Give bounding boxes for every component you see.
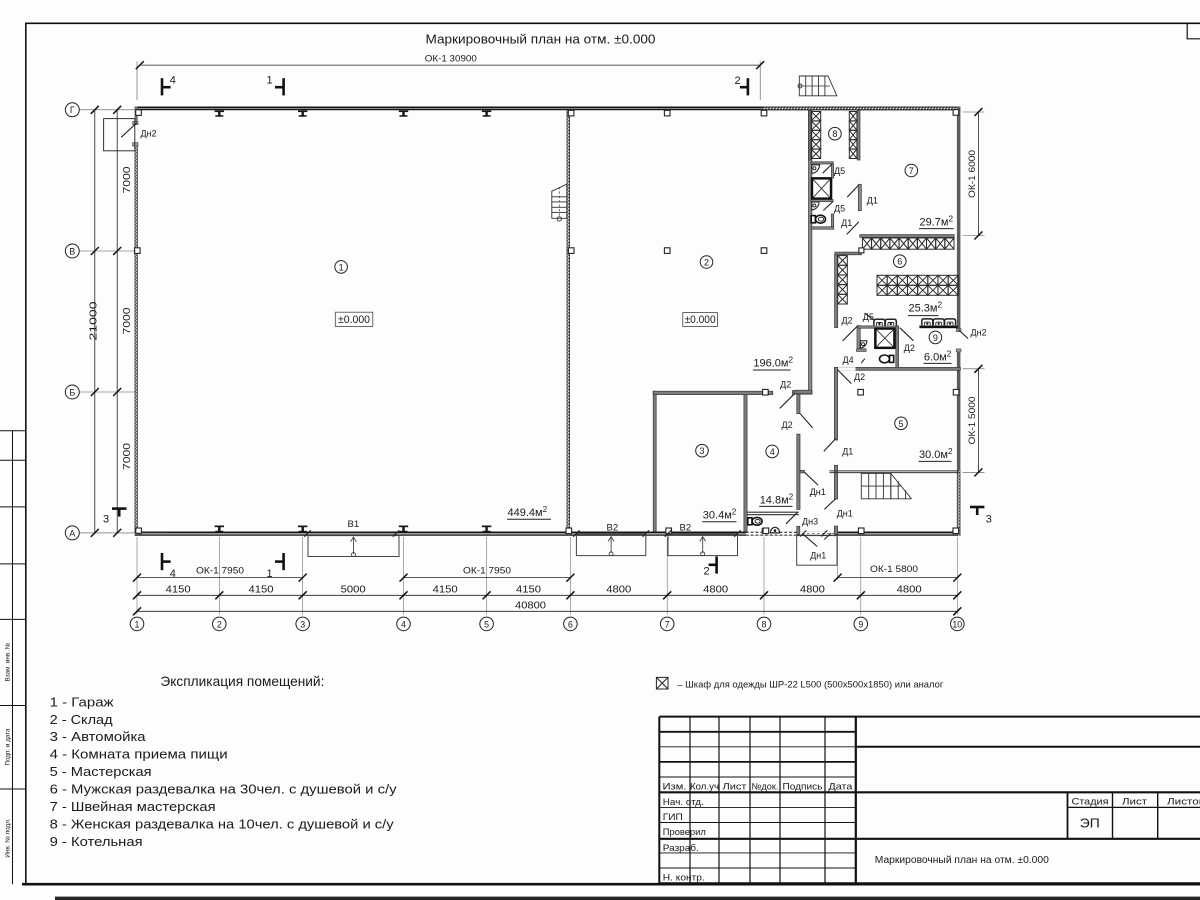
svg-text:14.8м2: 14.8м2 [760, 492, 794, 506]
svg-text:Стадия: Стадия [1072, 796, 1109, 807]
svg-text:1 - Гараж: 1 - Гараж [50, 694, 114, 709]
svg-text:8: 8 [832, 129, 837, 139]
svg-text:7: 7 [909, 166, 914, 176]
svg-text:2: 2 [704, 566, 710, 578]
svg-text:4150: 4150 [516, 584, 541, 595]
svg-text:7 - Швейная мастерская: 7 - Швейная мастерская [50, 799, 216, 814]
svg-text:ОК-1 5800: ОК-1 5800 [870, 564, 918, 574]
svg-text:Б: Б [69, 387, 75, 397]
svg-text:4150: 4150 [433, 584, 458, 595]
svg-text:Дата: Дата [828, 782, 853, 792]
svg-text:ОК-1 7950: ОК-1 7950 [463, 566, 511, 576]
svg-text:ОК-1 7950: ОК-1 7950 [196, 566, 244, 576]
svg-text:1: 1 [339, 262, 344, 272]
svg-text:Д5: Д5 [834, 204, 845, 214]
svg-text:Инв. № подл.: Инв. № подл. [5, 818, 12, 857]
svg-text:5000: 5000 [341, 584, 366, 595]
svg-text:1: 1 [135, 619, 140, 629]
svg-text:Лист: Лист [1122, 796, 1148, 807]
svg-text:4150: 4150 [249, 584, 274, 595]
svg-text:9 - Котельная: 9 - Котельная [50, 834, 143, 849]
svg-text:Дн1: Дн1 [810, 487, 826, 497]
svg-text:Дн1: Дн1 [810, 551, 826, 561]
svg-text:А: А [69, 528, 75, 538]
svg-text:6 - Мужская раздевалка на 30че: 6 - Мужская раздевалка на 30чел. с душев… [50, 782, 397, 797]
svg-text:Нач. отд.: Нач. отд. [663, 796, 704, 807]
svg-text:Д2: Д2 [782, 420, 793, 430]
svg-text:21000: 21000 [89, 301, 100, 341]
svg-text:Разраб.: Разраб. [663, 842, 699, 853]
svg-text:Д5: Д5 [863, 312, 874, 322]
svg-text:ЭП: ЭП [1080, 816, 1100, 831]
svg-text:Д1: Д1 [842, 447, 853, 457]
svg-text:ОК-1 6000: ОК-1 6000 [967, 150, 977, 198]
svg-text:9: 9 [858, 619, 863, 629]
svg-text:3: 3 [103, 514, 109, 526]
svg-text:7000: 7000 [122, 166, 133, 194]
svg-text:Д4: Д4 [843, 355, 854, 365]
svg-text:Подпись: Подпись [783, 782, 823, 792]
svg-text:29.7м2: 29.7м2 [920, 214, 954, 228]
svg-text:4800: 4800 [703, 584, 728, 595]
svg-text:– Шкаф для одежды ШР-22 L500 (: – Шкаф для одежды ШР-22 L500 (500х500х18… [677, 680, 944, 690]
svg-text:9: 9 [933, 333, 938, 343]
svg-text:7000: 7000 [122, 307, 133, 335]
svg-text:7: 7 [665, 619, 670, 629]
svg-text:Д2: Д2 [904, 343, 915, 353]
svg-text:Д1: Д1 [867, 196, 878, 206]
svg-text:4: 4 [170, 568, 176, 580]
svg-text:3: 3 [986, 514, 992, 526]
svg-text:ОК-1 30900: ОК-1 30900 [425, 54, 477, 64]
svg-text:В: В [69, 246, 75, 256]
svg-text:4 - Комната приема пищи: 4 - Комната приема пищи [50, 747, 228, 762]
svg-text:4: 4 [170, 75, 176, 87]
svg-text:Дн3: Дн3 [802, 517, 818, 527]
svg-text:Д2: Д2 [780, 380, 791, 390]
svg-text:4150: 4150 [166, 584, 191, 595]
svg-text:5: 5 [484, 619, 489, 629]
svg-text:В2: В2 [680, 523, 692, 534]
svg-text:В1: В1 [348, 519, 360, 530]
svg-text:Экспликация помещений:: Экспликация помещений: [160, 674, 324, 689]
svg-text:6: 6 [568, 619, 573, 629]
svg-text:Взам. инв. №: Взам. инв. № [5, 642, 12, 681]
svg-text:7000: 7000 [122, 442, 133, 470]
svg-text:Д2: Д2 [842, 316, 853, 326]
svg-text:Д5: Д5 [834, 166, 845, 176]
svg-text:4800: 4800 [800, 584, 825, 595]
svg-text:5: 5 [898, 419, 903, 429]
svg-text:Изм.: Изм. [663, 782, 687, 792]
svg-text:4: 4 [770, 447, 775, 457]
svg-text:2 - Склад: 2 - Склад [50, 712, 113, 727]
svg-text:Дн2: Дн2 [971, 328, 987, 338]
svg-text:3: 3 [699, 446, 704, 456]
svg-text:Д1: Д1 [841, 218, 852, 228]
svg-text:№док.: №док. [752, 782, 779, 792]
svg-text:Листов: Листов [1167, 796, 1200, 807]
svg-text:4800: 4800 [606, 584, 631, 595]
svg-text:±0.000: ±0.000 [685, 314, 716, 326]
svg-text:5 - Мастерская: 5 - Мастерская [50, 764, 152, 779]
svg-text:2: 2 [217, 619, 222, 629]
svg-text:Маркировочный план на отм. ±0.: Маркировочный план на отм. ±0.000 [426, 32, 656, 47]
svg-text:Г: Г [70, 105, 75, 115]
svg-text:8: 8 [762, 619, 767, 629]
svg-text:1: 1 [267, 568, 273, 580]
svg-text:4: 4 [401, 619, 406, 629]
svg-text:25.3м2: 25.3м2 [909, 301, 943, 315]
svg-text:Д2: Д2 [854, 372, 865, 382]
svg-text:1: 1 [267, 75, 273, 87]
svg-text:ГИП: ГИП [663, 811, 683, 822]
svg-text:196.0м2: 196.0м2 [753, 355, 793, 369]
svg-text:2: 2 [735, 75, 741, 87]
svg-text:30.0м2: 30.0м2 [919, 447, 953, 461]
svg-text:449.4м2: 449.4м2 [508, 505, 548, 519]
svg-text:Подп. и дата: Подп. и дата [5, 728, 12, 766]
svg-text:3: 3 [300, 619, 305, 629]
svg-text:Лист: Лист [723, 782, 748, 792]
svg-text:ОК-1 5000: ОК-1 5000 [967, 397, 977, 445]
svg-text:Дн2: Дн2 [141, 129, 157, 139]
svg-text:3 - Автомойка: 3 - Автомойка [50, 729, 147, 744]
svg-text:±0.000: ±0.000 [338, 314, 370, 326]
svg-text:10: 10 [952, 619, 962, 629]
svg-text:Проверил: Проверил [663, 826, 706, 837]
svg-text:Н. контр.: Н. контр. [663, 872, 705, 883]
svg-text:6: 6 [897, 257, 902, 267]
svg-text:30.4м2: 30.4м2 [703, 508, 737, 522]
svg-text:Маркировочный план на отм. ±0.: Маркировочный план на отм. ±0.000 [875, 855, 1049, 866]
svg-text:2: 2 [704, 258, 709, 268]
svg-text:40800: 40800 [515, 601, 546, 612]
svg-text:В2: В2 [607, 523, 619, 534]
svg-text:Дн1: Дн1 [837, 509, 853, 519]
svg-text:4800: 4800 [897, 584, 922, 595]
svg-text:Кол.уч: Кол.уч [690, 782, 719, 792]
svg-text:8 - Женская раздевалка на 10че: 8 - Женская раздевалка на 10чел. с душев… [50, 817, 394, 832]
